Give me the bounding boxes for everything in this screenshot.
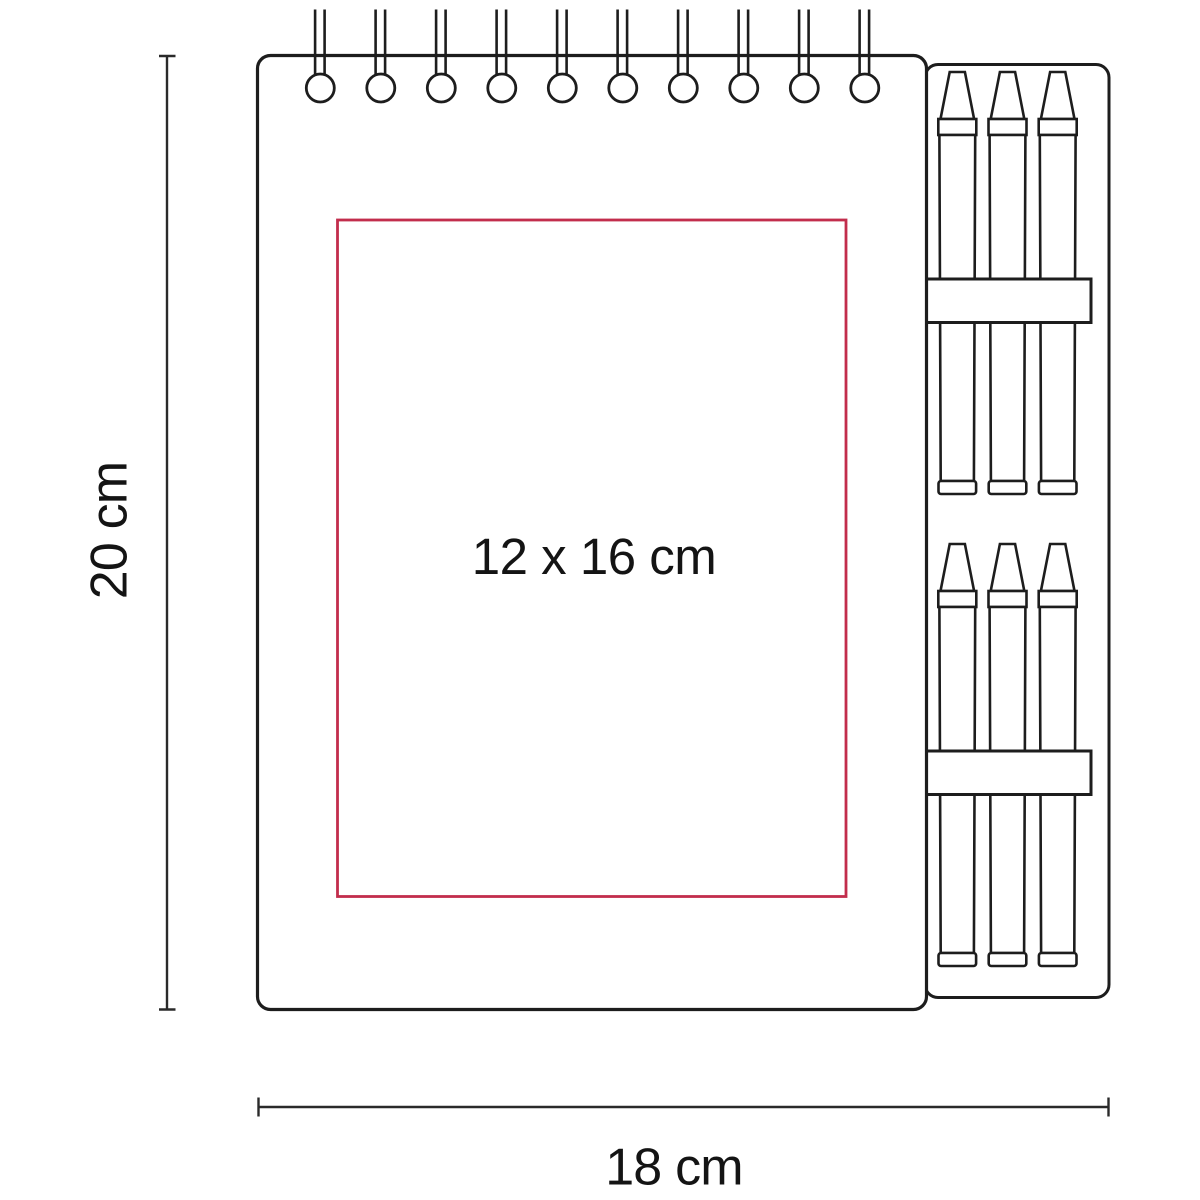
svg-text:12 x 16 cm: 12 x 16 cm bbox=[472, 528, 716, 585]
svg-text:18 cm: 18 cm bbox=[605, 1139, 743, 1197]
svg-text:20 cm: 20 cm bbox=[81, 462, 139, 600]
